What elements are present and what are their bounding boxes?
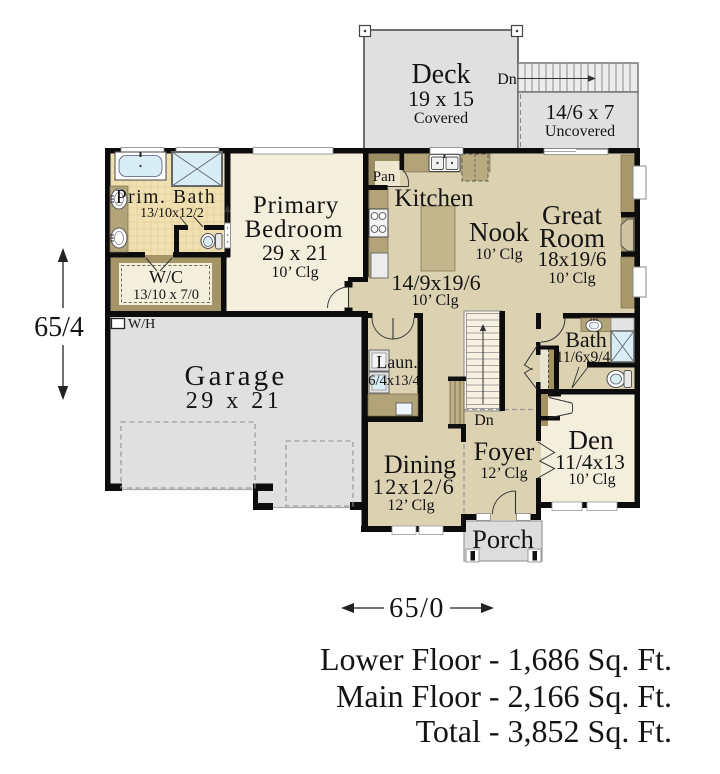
- svg-text:Lower Floor - 1,686 Sq. Ft.: Lower Floor - 1,686 Sq. Ft.: [320, 641, 672, 677]
- svg-text:14/6 x 7: 14/6 x 7: [546, 100, 615, 124]
- svg-text:65/0: 65/0: [389, 593, 445, 624]
- svg-text:10’ Clg: 10’ Clg: [568, 471, 615, 488]
- svg-text:29 x 21: 29 x 21: [262, 240, 328, 265]
- svg-text:W/C: W/C: [149, 267, 183, 287]
- svg-text:Porch: Porch: [472, 524, 534, 554]
- svg-text:19 x 15: 19 x 15: [408, 86, 474, 111]
- svg-text:10’ Clg: 10’ Clg: [548, 270, 595, 287]
- svg-text:65/4: 65/4: [34, 312, 84, 343]
- svg-text:Nook: Nook: [469, 217, 529, 247]
- svg-text:Laun.: Laun.: [376, 352, 417, 372]
- svg-text:W/H: W/H: [128, 317, 155, 332]
- svg-text:Prim. Bath: Prim. Bath: [116, 187, 217, 208]
- svg-text:10’ Clg: 10’ Clg: [411, 292, 458, 309]
- svg-text:13/10x12/2: 13/10x12/2: [140, 206, 204, 221]
- svg-text:6/4x13/4: 6/4x13/4: [368, 373, 420, 389]
- svg-text:10’ Clg: 10’ Clg: [271, 264, 318, 281]
- svg-text:Kitchen: Kitchen: [394, 185, 474, 212]
- svg-text:Uncovered: Uncovered: [545, 123, 615, 140]
- svg-text:29 x 21: 29 x 21: [186, 388, 283, 414]
- svg-text:11/6x9/4: 11/6x9/4: [556, 349, 611, 366]
- svg-text:Total - 3,852 Sq. Ft.: Total - 3,852 Sq. Ft.: [416, 713, 672, 749]
- svg-text:Primary: Primary: [253, 192, 339, 219]
- svg-text:Covered: Covered: [414, 110, 468, 127]
- svg-text:18x19/6: 18x19/6: [538, 247, 607, 271]
- svg-text:10’ Clg: 10’ Clg: [475, 246, 522, 263]
- svg-text:Foyer: Foyer: [474, 437, 535, 466]
- svg-text:Pan: Pan: [373, 169, 396, 185]
- svg-text:Bedroom: Bedroom: [245, 216, 344, 243]
- svg-text:12’ Clg: 12’ Clg: [480, 465, 527, 482]
- svg-text:Dn: Dn: [474, 412, 494, 429]
- svg-text:13/10 x 7/0: 13/10 x 7/0: [133, 287, 199, 303]
- svg-text:Main Floor - 2,166 Sq. Ft.: Main Floor - 2,166 Sq. Ft.: [336, 678, 672, 714]
- svg-text:12x12/6: 12x12/6: [373, 474, 456, 499]
- svg-text:12’ Clg: 12’ Clg: [387, 497, 434, 514]
- svg-text:Dn: Dn: [497, 71, 517, 88]
